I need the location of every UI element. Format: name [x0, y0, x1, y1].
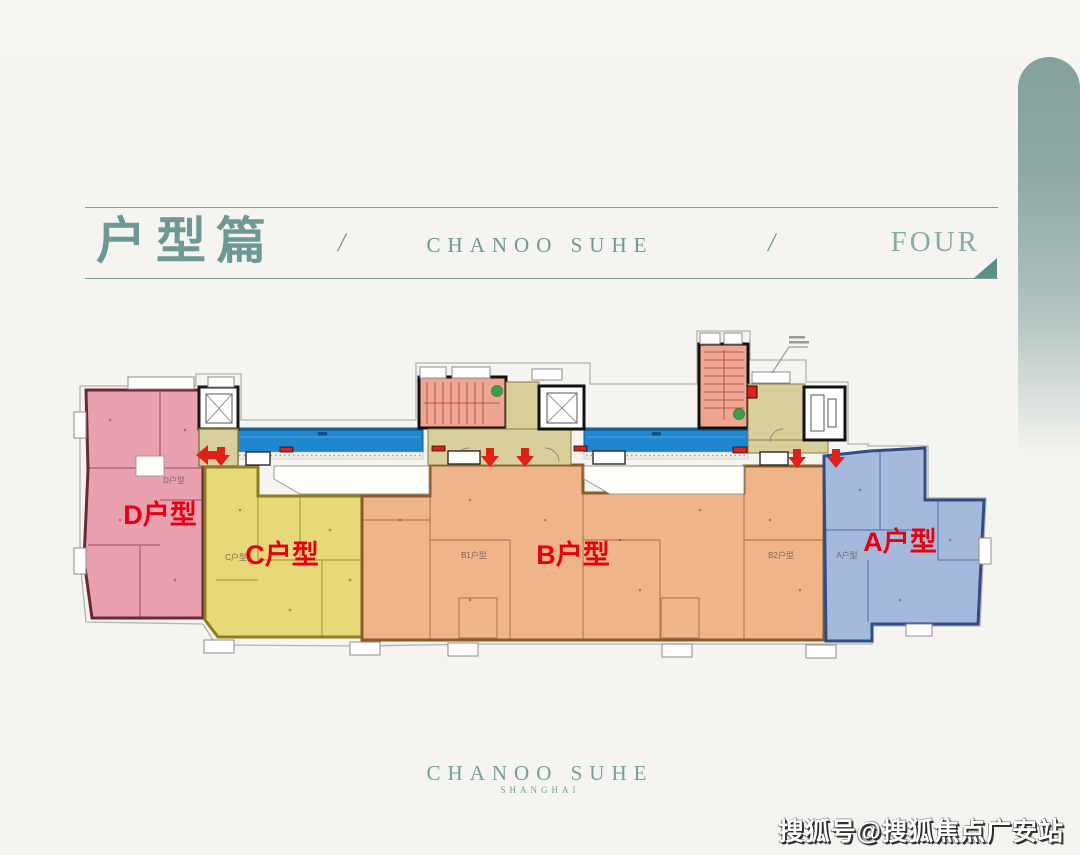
svg-text:D户型: D户型	[163, 475, 185, 485]
footer-brand: CHANOO SUHE	[0, 761, 1080, 786]
center-stair-core	[419, 377, 506, 428]
svg-text:A户型: A户型	[836, 550, 857, 560]
center-elevator	[539, 386, 584, 429]
unit-d-label: D户型	[123, 499, 197, 530]
page: { "header": { "title": "户型篇", "separator…	[0, 0, 1080, 855]
svg-text:B2户型: B2户型	[768, 550, 794, 560]
corridor-tag	[652, 432, 661, 436]
exit-dot-icon	[734, 409, 745, 420]
right-elevator	[804, 387, 845, 440]
floorplan-drawing: D户型 C户型 B1户型 B2户型 A户型 D户型 C户型 B户型 A户型	[0, 0, 1080, 855]
unit-c-label: C户型	[245, 539, 319, 570]
corridor-tag	[318, 432, 327, 436]
right-stair-core	[699, 344, 748, 428]
unit-b-label: B户型	[536, 539, 610, 570]
svg-text:C户型: C户型	[225, 552, 247, 562]
annotation-leader	[772, 336, 809, 373]
hydrant-icon	[747, 386, 757, 398]
watermark: 搜狐号@搜狐焦点广安站	[779, 812, 1064, 848]
footer-subtitle: SHANGHAI	[0, 785, 1080, 795]
svg-text:B1户型: B1户型	[461, 550, 487, 560]
unit-a-label: A户型	[863, 526, 937, 557]
exit-dot-icon	[492, 386, 503, 397]
